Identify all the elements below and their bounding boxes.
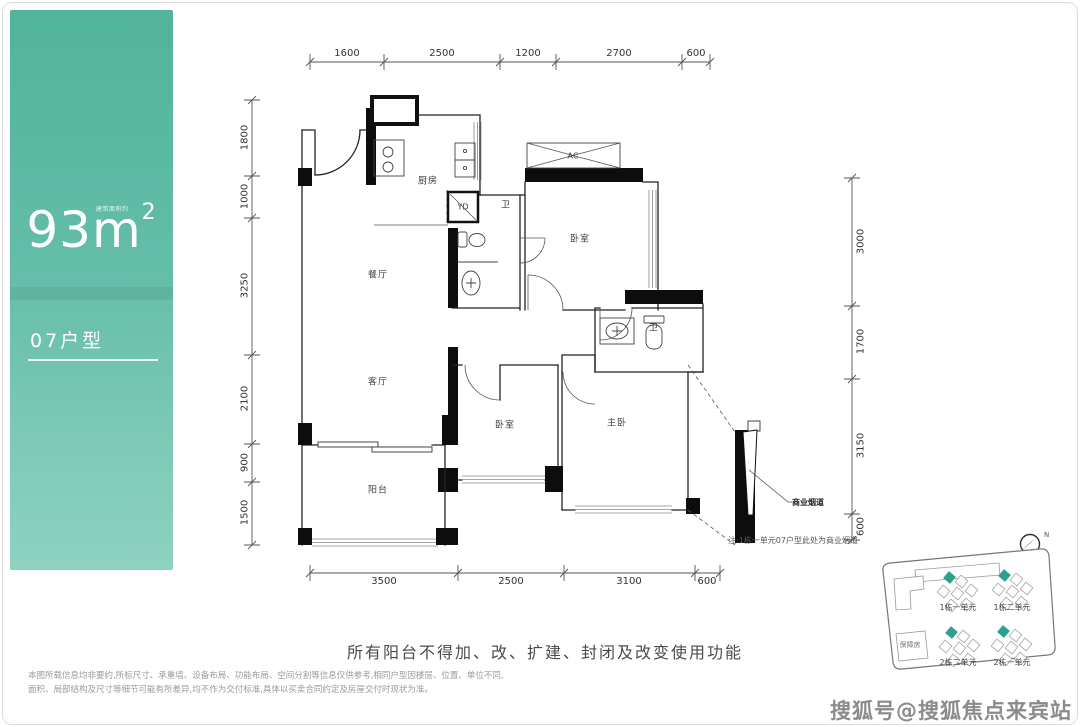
room-label-bedroom-top: 卧室 (570, 232, 590, 245)
bath1-sink-icon (458, 262, 498, 295)
dim-bottom-3: 3100 (607, 576, 651, 587)
room-label-bedroom-mid: 卧室 (495, 418, 515, 431)
kitchen-stove-icon (374, 140, 404, 176)
dim-top-5: 600 (674, 48, 718, 59)
door-arcs (465, 238, 632, 404)
disclaimer-line-1: 本图所载信息均非要约,所标尺寸、承重墙、设备布局、功能布局、空间分割等信息仅供参… (28, 669, 504, 683)
room-label-yd: YD (457, 203, 468, 212)
dim-left-2: 1000 (240, 175, 251, 219)
site-label-4: 2栋一单元 (984, 657, 1040, 668)
room-label-kitchen: 厨房 (418, 174, 438, 187)
area-panel: 建筑面积约 93m2 07户型 (10, 10, 173, 570)
room-label-ac: AC (568, 152, 579, 161)
disclaimer: 本图所载信息均非要约,所标尺寸、承重墙、设备布局、功能布局、空间分割等信息仅供参… (28, 669, 504, 697)
panel-divider-band (10, 287, 173, 300)
unit-underline (28, 359, 158, 361)
dim-bottom-1: 3500 (362, 576, 406, 587)
wall-columns (298, 168, 312, 445)
room-label-master: 主卧 (607, 416, 627, 429)
dim-left-1: 1800 (240, 116, 251, 160)
dim-bottom-4: 600 (685, 576, 729, 587)
dim-left-5: 900 (240, 441, 251, 485)
site-support-label: 保障房 (886, 640, 934, 650)
walls (298, 97, 703, 546)
bath1-toilet-icon (458, 232, 485, 247)
site-label-3: 2栋二单元 (930, 657, 986, 668)
floorplan-page: 建筑面积约 93m2 07户型 (0, 0, 1080, 727)
flue-label: 商业烟道 (792, 497, 824, 508)
disclaimer-line-2: 面积、局部结构及尺寸等细节可能有所差异,均不作为交付标准,具体以买卖合同约定及房… (28, 683, 504, 697)
plan-note: 注:1栋一单元07户型此处为商业烟道 (728, 535, 858, 546)
room-label-bath2: 卫 (649, 321, 659, 334)
dimension-lines (244, 54, 860, 581)
dim-top-4: 2700 (597, 48, 641, 59)
room-label-living: 客厅 (368, 375, 388, 388)
dim-left-3: 3250 (240, 264, 251, 308)
room-label-dining: 餐厅 (368, 268, 388, 281)
commercial-flue (688, 365, 792, 545)
dim-left-4: 2100 (240, 377, 251, 421)
dim-right-1: 3000 (856, 220, 867, 264)
room-label-balcony: 阳台 (368, 483, 388, 496)
unit-type-label: 07户型 (30, 326, 104, 353)
dim-right-4: 600 (856, 505, 867, 549)
balcony-notice: 所有阳台不得加、改、扩建、封闭及改变使用功能 (280, 639, 810, 663)
area-small-label: 建筑面积约 (96, 204, 129, 213)
floorplan-svg (240, 40, 880, 585)
site-label-2: 1栋二单元 (984, 602, 1040, 613)
dim-top-2: 2500 (420, 48, 464, 59)
dim-right-3: 3150 (856, 424, 867, 468)
room-label-bath1: 卫 (501, 198, 511, 211)
dim-top-3: 1200 (506, 48, 550, 59)
site-label-1: 1栋一单元 (930, 602, 986, 613)
watermark: 搜狐号@搜狐焦点来宾站 (830, 695, 1072, 725)
kitchen-sink-icon (455, 143, 475, 177)
north-label: N (1044, 531, 1049, 539)
area-value: 建筑面积约 93m2 (10, 202, 173, 255)
dim-bottom-2: 2500 (489, 576, 533, 587)
dim-left-6: 1500 (240, 491, 251, 535)
dim-top-1: 1600 (325, 48, 369, 59)
dim-right-2: 1700 (856, 320, 867, 364)
